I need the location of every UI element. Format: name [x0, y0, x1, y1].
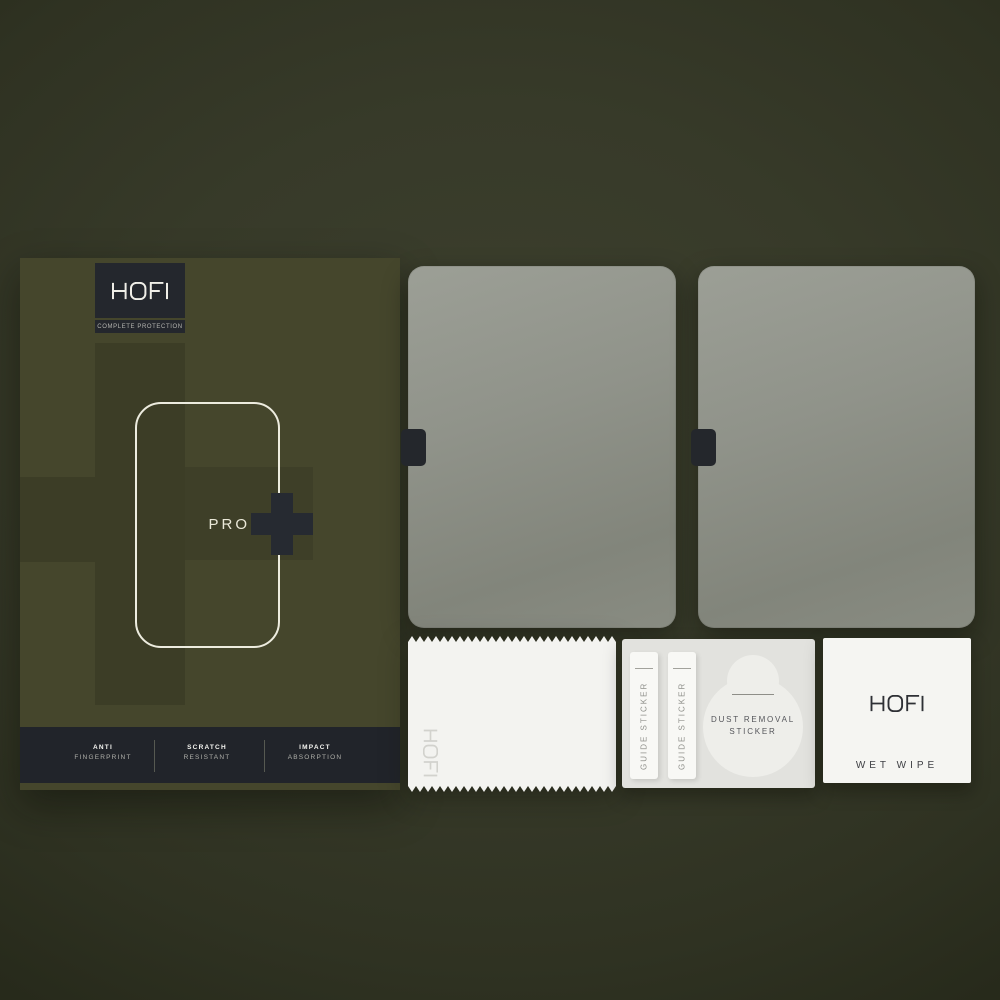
feature-divider — [264, 740, 265, 772]
cloth-zigzag-shape — [408, 636, 616, 792]
feature-divider — [154, 740, 155, 772]
brand-logo-box: HOFI — [95, 263, 185, 318]
hofi-logo-icon — [869, 695, 925, 712]
retail-box: HOFI COMPLETE PROTECTION PRO ANTI FINGER… — [20, 258, 400, 790]
plus-icon — [251, 493, 313, 555]
pull-tab-icon — [401, 429, 426, 466]
cloth-brand-logo: HOFI — [423, 728, 438, 778]
sticker-line — [635, 668, 653, 669]
pull-tab-icon — [691, 429, 716, 466]
glass-protector-1 — [408, 266, 676, 628]
sticker-line — [673, 668, 691, 669]
feature-anti-fingerprint: ANTI FINGERPRINT — [74, 744, 131, 761]
wipe-label: WET WIPE — [823, 760, 971, 771]
wet-wipe-sachet: HOFI WET WIPE — [823, 638, 971, 783]
cleaning-cloth: HOFI — [408, 636, 616, 792]
sticker-line — [732, 694, 774, 695]
feature-impact-absorption: IMPACT ABSORPTION — [288, 744, 343, 761]
guide-sticker-1: GUIDE STICKER — [630, 652, 658, 779]
product-photo: HOFI COMPLETE PROTECTION PRO ANTI FINGER… — [0, 0, 1000, 1000]
plus-vertical-bar — [271, 493, 293, 555]
model-name: PRO — [20, 517, 250, 532]
sticker-sheet: GUIDE STICKER GUIDE STICKER DUST REMOVAL… — [622, 639, 815, 788]
glass-protector-2 — [698, 266, 975, 628]
wipe-brand-logo — [869, 695, 925, 712]
hofi-logo-icon — [423, 728, 438, 778]
dust-removal-sticker: DUST REMOVAL STICKER — [703, 655, 803, 777]
features-bar: ANTI FINGERPRINT SCRATCH RESISTANT IMPAC… — [20, 727, 400, 783]
guide-sticker-2: GUIDE STICKER — [668, 652, 696, 779]
feature-scratch-resistant: SCRATCH RESISTANT — [184, 744, 231, 761]
wipe-brand-name: HOFI — [823, 638, 824, 639]
brand-tagline: COMPLETE PROTECTION — [95, 320, 185, 333]
hofi-logo-icon — [111, 282, 169, 300]
